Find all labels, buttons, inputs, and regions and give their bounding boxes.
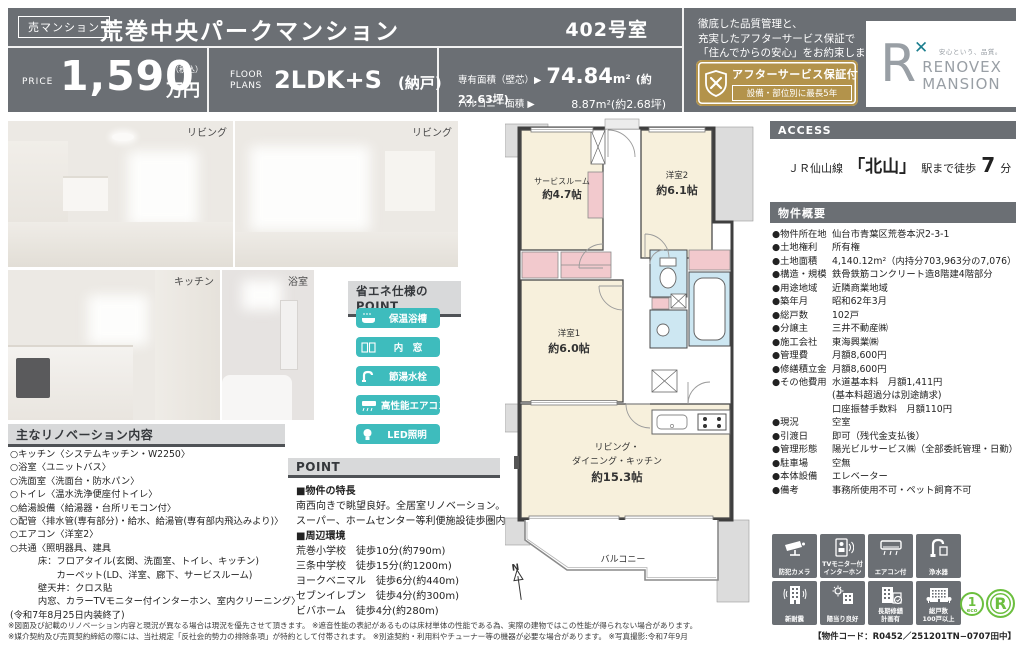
outline-value: 三井不動産㈱ [832,322,888,335]
eco-badge-led: LED照明 [356,424,440,444]
kitchen-sink [657,415,687,429]
label-ldk-size: 約15.3帖 [591,470,643,484]
quality-line3: 「住んでからの安心」をお約束します。 [698,46,885,61]
renovation-item: 壁天井：クロス貼 [10,582,294,595]
outline-label: ●構造・規模 [772,268,832,281]
sun-building-icon [831,585,855,605]
floor-plan: サービスルーム 約4.7帖 洋室2 約6.1帖 洋室1 約6.0帖 リビング・ … [505,118,770,605]
outline-value: 口座振替手数料 月額110円 [832,403,952,416]
outline-label: ●築年月 [772,295,832,308]
label-service-size: 約4.7帖 [542,188,582,201]
amenity-label: 防犯カメラ [779,569,810,577]
price-unit: 万円 [166,76,200,101]
after-service-warranty-badge: アフターサービス保証付 設備・部位別に最長5年 [696,60,858,106]
price-label: PRICE [22,77,53,87]
outline-row: ●管理形態陽光ビルサービス㈱（全部委託管理・日勤） [772,443,1022,456]
outline-label [772,403,832,416]
outline-row: ●用途地域近隣商業地域 [772,282,1022,295]
access-section-title: ACCESS [770,121,1016,139]
photo-label-living-2: リビング [412,124,452,139]
label-bedroom1-size: 約6.0帖 [548,341,590,355]
outline-value: エレベーター [832,470,888,483]
category-badge: 売マンション [18,16,110,38]
eco-mark-number: 1 [968,595,976,609]
area-unit: m² [613,72,631,86]
disclaimer-line-1: ※図面及び記載のリノベーション内容と現況が異なる場合は現況を優先させて頂きます。… [8,620,778,631]
amenity-100plus-units: 総戸数 100戸以上 [916,581,961,625]
balcony-size: 8.87m² [571,98,611,111]
renovation-list: ○キッチン〈システムキッチン・W2250〉 ○浴室〈ユニットバス〉 ○洗面室〈洗… [10,448,294,622]
outline-row: ●引渡日即可（残代金支払後） [772,430,1022,443]
outline-label: ●駐車場 [772,457,832,470]
aircon-icon [879,538,903,558]
outline-row: ●修繕積立金月額8,600円 [772,363,1022,376]
access-suffix: 分 [1000,162,1011,175]
led-bulb-icon [361,428,374,441]
point-heading-features: ■物件の特長 [296,484,510,499]
point-section-title: POINT [288,458,500,478]
balcony-tsubo: (約2.68坪) [611,98,666,111]
outline-value: 所有権 [832,241,860,254]
access-station: 「北山」 [848,157,916,177]
outline-row: ●総戸数102戸 [772,309,1022,322]
outline-value: 空室 [832,416,851,429]
outline-label: ●施工会社 [772,336,832,349]
outline-row: ●その他費用水道基本料 月額1,411円 [772,376,1022,389]
amenity-label: 浄水器 [929,569,948,577]
logo-name-2: MANSION [922,76,1002,93]
photo-kitchen: キッチン [8,270,220,420]
outline-label: ●引渡日 [772,430,832,443]
amenity-good-sunlight: 陽当り良好 [820,581,865,625]
point-surrounding: 荒巻小学校 徒歩10分(約790m) [296,544,510,559]
renovation-item: カーペット(LD、洋室、廊下、サービスルーム) [10,569,294,582]
amenity-tv-intercom: TVモニター付 インターホン [820,534,865,578]
header-divider-v1 [207,48,209,112]
access-rail-line: ＪＲ仙山線 [788,162,843,175]
outline-section-title: 物件概要 [770,202,1016,223]
outline-value: 仙台市青葉区荒巻本沢2-3-1 [832,228,949,241]
logo-text: 安心という、品質。 RENOVEX MANSION [922,36,1002,93]
outline-value: (基本料超過分は別途請求) [832,389,942,402]
outline-label: ●物件所在地 [772,228,832,241]
header-divider-v3 [682,8,684,112]
logo-tagline: 安心という、品質。 [922,46,1002,56]
outline-row: ●構造・規模鉄骨鉄筋コンクリート造8階建4階部分 [772,268,1022,281]
page-title: 荒巻中央パークマンション [100,12,400,46]
eco-badge-inner-window: 内 窓 [356,337,440,357]
renovation-item: ○共通〈照明器具、建具 [10,542,294,555]
floorplan-value: 2LDK+S [274,66,382,94]
logo-r-mark: R✕ [880,38,916,90]
amenity-label: 陽当り良好 [827,616,858,624]
outline-table: ●物件所在地仙台市青葉区荒巻本沢2-3-1 ●土地権利所有権 ●土地面積4,14… [772,228,1022,497]
outline-label: ●その他費用 [772,376,832,389]
flyer-page: 売マンション 荒巻中央パークマンション 402号室 PRICE 1,590 （税… [0,0,1024,649]
outline-row: ●現況空室 [772,416,1022,429]
aircon-icon [361,399,377,412]
bathtub-icon [361,312,376,325]
header-divider-h [8,46,684,48]
warranty-subtitle: 設備・部位別に最長5年 [732,85,852,101]
amenity-water-purifier: 浄水器 [916,534,961,578]
renovex-logo: R✕ 安心という、品質。 RENOVEX MANSION [866,21,1016,107]
outline-value: 昭和62年3月 [832,295,887,308]
outline-label: ●土地権利 [772,241,832,254]
amenity-label: 長期修繕 計画有 [878,608,903,623]
outline-value: 鉄骨鉄筋コンクリート造8階建4階部分 [832,268,993,281]
disclaimer-line-2: ※媒介契約及び売買契約締結の際には、当社規定「反社会的勢力の排除条項」が特約とし… [8,631,778,642]
outline-value: 空無 [832,457,851,470]
disclaimer: ※図面及び記載のリノベーション内容と現況が異なる場合は現況を優先させて頂きます。… [8,620,778,642]
outline-row: ●備考事務所使用不可・ペット飼育不可 [772,484,1022,497]
outline-value: 東海興業㈱ [832,336,879,349]
outline-label: ●分譲主 [772,322,832,335]
eco-badge-aircon: 高性能エアコン [356,395,440,415]
area-label: 専有面積（壁芯）▶ [458,75,541,86]
floorplan-label-1: FLOOR [230,70,263,81]
access-line: ＪＲ仙山線 「北山」 駅まで徒歩 7 分 [788,152,1011,177]
outline-value: 陽光ビルサービス㈱（全部委託管理・日勤） [832,443,1018,456]
outline-row: ●築年月昭和62年3月 [772,295,1022,308]
toilet-fixture [660,268,676,288]
room-number: 402号室 [565,15,648,42]
outline-label: ●修繕積立金 [772,363,832,376]
access-mid: 駅まで徒歩 [921,162,976,175]
r-mark-letter: R [994,594,1006,613]
amenity-aircon: エアコン付 [868,534,913,578]
label-bedroom2: 洋室2 [666,170,688,181]
renovation-item: ○キッチン〈システムキッチン・W2250〉 [10,448,294,461]
price-tax-note: （税込） [171,64,203,75]
label-bedroom1: 洋室1 [558,328,580,339]
outline-label: ●用途地域 [772,282,832,295]
photo-label-kitchen: キッチン [174,273,214,288]
renovation-item: ○トイレ〈温水洗浄便座付トイレ〉 [10,488,294,501]
outline-value: 4,140.12m²（内持分703,963分の7,076） [832,255,1016,268]
security-camera-icon [783,538,807,558]
outline-label: ●管理形態 [772,443,832,456]
outline-row: ●物件所在地仙台市青葉区荒巻本沢2-3-1 [772,228,1022,241]
kitchen-stove [698,414,726,430]
quality-statement: 徹底した品質管理と、 充実したアフターサービス保証で 「住んでからの安心」をお約… [698,17,885,61]
outline-value: 月額8,600円 [832,349,887,362]
water-purifier-icon [928,538,950,558]
label-bedroom2-size: 約6.1帖 [656,183,698,197]
balcony-value: 8.87m²(約2.68坪) [571,96,666,112]
point-body: ■物件の特長 南西向きで眺望良好。全居室リノベーション。 スーパー、ホームセンタ… [296,484,510,619]
outline-value: 即可（残代金支払後） [832,430,925,443]
outline-row: ●土地権利所有権 [772,241,1022,254]
repair-plan-buildings-icon [879,585,903,605]
eco-badge-label: 内 窓 [380,340,440,354]
point-feature: 南西向きで眺望良好。全居室リノベーション。 [296,499,510,514]
renovation-item: 床：フロアタイル(玄関、洗面室、トイレ、キッチン) [10,555,294,568]
north-arrow: N [511,563,526,601]
renovation-item: ○給湯設備〈給湯器・台所リモコン付〉 [10,502,294,515]
amenity-label: エアコン付 [875,569,906,577]
area-value: 74.84 [546,64,612,88]
outline-row: ●管理費月額8,600円 [772,349,1022,362]
intercom-icon [832,538,854,558]
label-ldk-1: リビング・ [594,441,639,453]
point-feature: スーパー、ホームセンター等利便施設徒歩圏内 [296,514,510,529]
floorplan-label-2: PLANS [230,81,263,92]
photo-label-bathroom: 浴室 [288,273,308,288]
point-surrounding: セブンイレブン 徒歩4分(約300m) [296,589,510,604]
outline-row: ●本体設備エレベーター [772,470,1022,483]
large-building-icon [926,585,952,605]
photo-living-main: リビング [8,121,233,267]
point-heading-surroundings: ■周辺環境 [296,529,510,544]
renovation-item: ○エアコン〈洋室2〉 [10,528,294,541]
outline-value: 事務所使用不可・ペット飼育不可 [832,484,971,497]
property-code: 【物件コード：R0452／251201TN−0707田中】 [813,630,1016,642]
eco-badge-bathtub: 保温浴槽 [356,308,440,328]
outline-row: ●土地面積4,140.12m²（内持分703,963分の7,076） [772,255,1022,268]
amenity-longterm-repair-plan: 長期修繕 計画有 [868,581,913,625]
outline-row: ●施工会社東海興業㈱ [772,336,1022,349]
renovation-section-title: 主なリノベーション内容 [8,424,285,447]
outline-value: 近隣商業地域 [832,282,888,295]
room-bedroom1 [521,280,623,402]
label-service-room: サービスルーム [534,177,590,186]
outline-label: ●備考 [772,484,832,497]
amenity-label: 新耐震 [785,616,804,624]
eco-badge-label: 保温浴槽 [380,311,440,325]
outline-row: (基本料超過分は別途請求) [772,389,1022,402]
eco-badge-faucet: 節湯水栓 [356,366,440,386]
access-minutes: 7 [981,153,995,177]
outline-row: ●分譲主三井不動産㈱ [772,322,1022,335]
outline-value: 月額8,600円 [832,363,887,376]
window-icon [361,341,376,354]
photo-label-living-main: リビング [187,124,227,139]
balcony-area-row: バルコニー面積 ▶ 8.87m²(約2.68坪) [458,96,666,112]
floorplan-suffix: (納戸) [398,72,442,93]
eco-badge-label: LED照明 [378,427,440,441]
balcony-label: バルコニー面積 ▶ [458,96,535,112]
logo-r-letter: R [880,34,916,94]
outline-value: 102戸 [832,309,859,322]
renovation-item: ○配管〈排水管(専有部分)・給水、給湯管(専有部内飛込みより)〉 [10,515,294,528]
amenity-security-camera: 防犯カメラ [772,534,817,578]
point-surrounding: ヨークベニマル 徒歩6分(約440m) [296,574,510,589]
outline-label: ●土地面積 [772,255,832,268]
renovation-item: 内窓、カラーTVモニター付インターホン、室内クリーニング〉 [10,595,294,608]
amenity-label: 総戸数 100戸以上 [922,608,954,623]
earthquake-resistant-building-icon [783,585,807,605]
faucet-icon [361,370,376,383]
outline-label: ●管理費 [772,349,832,362]
label-balcony: バルコニー [601,554,646,565]
outline-label: ●現況 [772,416,832,429]
quality-line2: 充実したアフターサービス保証で [698,32,885,47]
point-surrounding: 三条中学校 徒歩15分(約1200m) [296,559,510,574]
meter-box [514,456,519,469]
outline-label: ●本体設備 [772,470,832,483]
point-surrounding: ビバホーム 徒歩4分(約280m) [296,604,510,619]
bathtub-fixture [694,278,725,340]
balcony-outline [525,520,718,580]
eco-mark-text: eco [962,609,982,614]
label-ldk-2: ダイニング・キッチン [572,455,662,467]
amenity-label: TVモニター付 インターホン [822,561,863,576]
amenity-new-earthquake-standard: 新耐震 [772,581,817,625]
eco-badge-label: 高性能エアコン [381,398,452,412]
r-certification-mark: R [986,589,1015,618]
eco-mark: 1eco [960,592,984,616]
renovation-item: ○浴室〈ユニットバス〉 [10,461,294,474]
outline-value: 水道基本料 月額1,411円 [832,376,942,389]
quality-line1: 徹底した品質管理と、 [698,17,885,32]
outline-row: ●駐車場空無 [772,457,1022,470]
eco-badge-label: 節湯水栓 [380,369,440,383]
logo-name-1: RENOVEX [922,59,1002,76]
renovation-item: ○洗面室〈洗面台・防水パン〉 [10,475,294,488]
header: 売マンション 荒巻中央パークマンション 402号室 PRICE 1,590 （税… [8,8,1016,112]
outline-row: 口座振替手数料 月額110円 [772,403,1022,416]
outline-label [772,389,832,402]
amenity-grid: 防犯カメラ TVモニター付 インターホン エアコン付 浄水器 [772,534,961,625]
photo-living-2: リビング [235,121,458,267]
floorplan-label: FLOOR PLANS [230,70,263,92]
washbasin-fixture [657,324,669,336]
shield-tools-icon [704,70,728,97]
photo-bathroom: 浴室 [222,270,314,420]
outline-label: ●総戸数 [772,309,832,322]
entrance-porch [605,119,639,129]
warranty-title: アフターサービス保証付 [732,66,852,82]
logo-x-icon: ✕ [914,40,928,57]
